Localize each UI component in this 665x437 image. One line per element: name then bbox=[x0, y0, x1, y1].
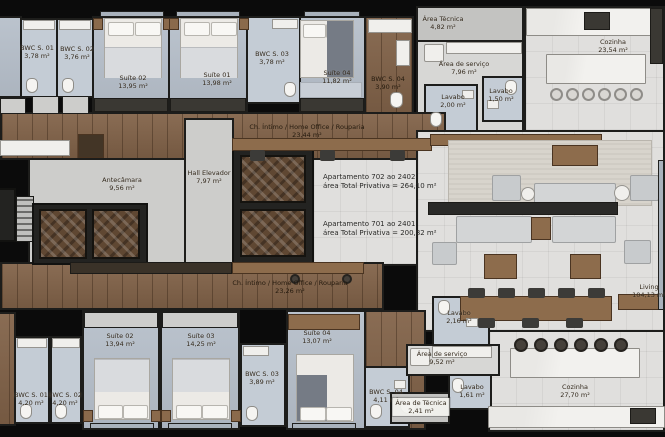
unit-annotation-702: Apartamento 702 ao 2402 área Total Priva… bbox=[323, 173, 437, 192]
room-label-living: Living104,13 m² bbox=[632, 283, 665, 299]
kitchen-island bbox=[510, 348, 640, 378]
room-label-antecamara: Antecâmara9,56 m² bbox=[102, 176, 142, 192]
window bbox=[292, 423, 356, 429]
dining-chair bbox=[528, 288, 545, 298]
room-label-bwc2-top: BWC S. 023,76 m² bbox=[60, 45, 94, 61]
toilet-icon bbox=[430, 112, 442, 127]
armchair bbox=[492, 175, 521, 201]
bed bbox=[94, 358, 150, 420]
room-label-bwc4-top: BWC S. 043,90 m² bbox=[371, 75, 405, 91]
closet bbox=[0, 98, 26, 114]
wardrobe bbox=[94, 98, 168, 112]
room-label-suite04-bottom: Suíte 0413,07 m² bbox=[302, 329, 332, 345]
dining-chair bbox=[566, 318, 583, 328]
room-label-lavabo-top-1: Lavabo2,00 m² bbox=[440, 93, 465, 109]
shaft-left bbox=[0, 188, 16, 242]
side-table bbox=[531, 217, 551, 240]
armchair bbox=[630, 175, 659, 201]
window bbox=[176, 11, 240, 17]
closet bbox=[162, 312, 238, 328]
bed bbox=[172, 358, 230, 420]
side-table bbox=[570, 254, 601, 279]
laundry-counter bbox=[446, 42, 522, 54]
vanity bbox=[59, 20, 91, 30]
room-label-suite02-bottom: Suíte 0213,94 m² bbox=[105, 332, 135, 348]
bed bbox=[296, 354, 354, 422]
closet bbox=[62, 96, 89, 114]
closet bbox=[32, 96, 59, 114]
bar-stool bbox=[614, 88, 627, 101]
window bbox=[100, 11, 164, 17]
room-label-cozinha-top: Cozinha23,54 m² bbox=[598, 38, 628, 54]
stove-icon bbox=[630, 408, 656, 424]
toilet-icon bbox=[284, 82, 296, 97]
room-label-area-servico-top: Área de serviço7,96 m² bbox=[439, 60, 489, 76]
side-table bbox=[484, 254, 517, 279]
vanity bbox=[272, 19, 298, 29]
bar-stool bbox=[598, 88, 611, 101]
sofa bbox=[456, 216, 532, 243]
bar-stool bbox=[614, 338, 628, 352]
nightstand bbox=[169, 18, 179, 30]
room-hall-elevador bbox=[184, 118, 234, 266]
dining-chair bbox=[522, 318, 539, 328]
shelf bbox=[288, 314, 360, 330]
nightstand bbox=[161, 410, 171, 422]
room-label-suite01-top: Suíte 0113,98 m² bbox=[202, 71, 232, 87]
dining-chair bbox=[468, 288, 485, 298]
room-label-ch-intimo-top: Ch. Íntimo / Home Office / Rouparia23,44… bbox=[249, 123, 364, 139]
elevator-cab-icon bbox=[240, 209, 306, 257]
bar-stool bbox=[566, 88, 579, 101]
toilet-icon bbox=[26, 78, 38, 93]
shower bbox=[368, 19, 412, 33]
bed bbox=[104, 18, 162, 78]
kitchen-island bbox=[546, 54, 646, 84]
room-label-lavabo-bottom-1: Lavabo2,16 m² bbox=[446, 309, 471, 325]
toilet-icon bbox=[370, 404, 382, 419]
nightstand bbox=[231, 410, 241, 422]
elevator-bank-left bbox=[32, 203, 148, 265]
toilet-icon bbox=[246, 406, 258, 421]
window bbox=[90, 423, 154, 429]
vanity bbox=[396, 40, 410, 66]
closet bbox=[84, 312, 158, 328]
room-label-hall-elevador: Hall Elevador7,97 m² bbox=[187, 169, 230, 185]
bar-stool bbox=[630, 88, 643, 101]
armchair bbox=[432, 242, 457, 265]
room-label-cozinha-bottom: Cozinha27,70 m² bbox=[560, 383, 590, 399]
vanity bbox=[23, 20, 55, 30]
bar-stool bbox=[534, 338, 548, 352]
dining-chair bbox=[588, 288, 605, 298]
desk-chair bbox=[390, 150, 405, 161]
desk-chair bbox=[250, 150, 265, 161]
room-label-lavabo-top-2: Lavabo1,50 m² bbox=[488, 87, 513, 103]
room-label-bwc1-bottom: BWC S. 014,20 m² bbox=[14, 391, 48, 407]
elevator-cab-icon bbox=[92, 209, 140, 259]
room-label-bwc3-bottom: BWC S. 033,89 m² bbox=[245, 370, 279, 386]
desk-chair bbox=[320, 150, 335, 161]
sofa bbox=[552, 216, 616, 243]
nightstand bbox=[93, 18, 103, 30]
room-label-bwc2-bottom: BWC S. 024,20 m² bbox=[48, 391, 82, 407]
armchair bbox=[624, 240, 651, 264]
stove-icon bbox=[584, 12, 610, 30]
toilet-icon bbox=[390, 92, 403, 108]
wardrobe bbox=[170, 98, 246, 112]
floor-plan-canvas: BWC S. 013,78 m² BWC S. 023,76 m² Suíte … bbox=[0, 0, 665, 437]
toilet-icon bbox=[62, 78, 74, 93]
media-console bbox=[428, 202, 618, 215]
fridge-icon bbox=[650, 8, 663, 64]
dining-chair bbox=[498, 288, 515, 298]
room-label-suite02-top: Suíte 0213,95 m² bbox=[118, 74, 148, 90]
home-office-desk bbox=[232, 262, 364, 274]
bar-stool bbox=[574, 338, 588, 352]
elevator-cab-icon bbox=[39, 209, 87, 259]
desk bbox=[78, 134, 104, 158]
elevator-bank-center bbox=[232, 148, 314, 264]
room-label-suite03-bottom: Suíte 0314,25 m² bbox=[186, 332, 216, 348]
room-label-area-tecnica-bottom: Área de Técnica2,41 m² bbox=[392, 398, 449, 416]
unit-annotation-701: Apartamento 701 ao 2401 área Total Priva… bbox=[323, 220, 437, 239]
bar-stool bbox=[550, 88, 563, 101]
side-table bbox=[521, 187, 535, 201]
vanity bbox=[243, 346, 269, 356]
room-label-ch-intimo-bottom: Ch. Íntimo / Home Office / Rouparia23,26… bbox=[232, 279, 347, 295]
nightstand bbox=[83, 410, 93, 422]
window bbox=[168, 423, 232, 429]
vanity bbox=[52, 338, 80, 348]
home-office-desk bbox=[70, 262, 232, 274]
room-partial-top-left bbox=[0, 16, 22, 98]
vanity bbox=[17, 338, 47, 348]
nightstand bbox=[239, 18, 249, 30]
room-label-lavabo-bottom-2: Lavabo1,61 m² bbox=[459, 383, 484, 399]
wardrobe bbox=[300, 98, 364, 112]
bar-stool bbox=[582, 88, 595, 101]
dining-chair bbox=[558, 288, 575, 298]
window bbox=[304, 11, 360, 17]
coffee-table bbox=[552, 145, 598, 166]
room-label-suite04-top: Suíte 0411,82 m² bbox=[322, 69, 352, 85]
room-label-area-tecnica-top: Área Técnica4,82 m² bbox=[423, 15, 464, 31]
dining-chair bbox=[478, 318, 495, 328]
elevator-cab-icon bbox=[240, 155, 306, 203]
bar-stool bbox=[594, 338, 608, 352]
side-table bbox=[614, 185, 630, 201]
room-label-area-servico-bottom: Área de serviço9,52 m² bbox=[417, 350, 467, 366]
nightstand bbox=[151, 410, 161, 422]
bar-stool bbox=[514, 338, 528, 352]
room-label-bwc3-top: BWC S. 033,78 m² bbox=[255, 50, 289, 66]
console-counter bbox=[0, 140, 70, 156]
bar-stool bbox=[554, 338, 568, 352]
bed bbox=[180, 18, 238, 78]
room-label-bwc1-top: BWC S. 013,78 m² bbox=[20, 44, 54, 60]
